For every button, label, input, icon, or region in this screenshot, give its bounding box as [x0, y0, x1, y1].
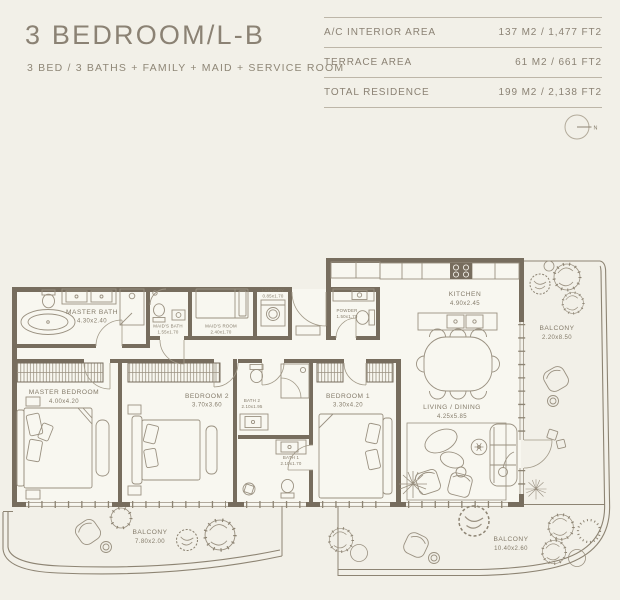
label-bath2-dims: 2.10x1.95 — [241, 404, 262, 409]
label-kitchen: KITCHEN — [449, 291, 481, 298]
label-balcony-right-dims: 2.20x8.50 — [542, 335, 572, 341]
label-maids-room-dims: 2.40x1.70 — [210, 330, 231, 335]
label-balcony-right: BALCONY — [539, 325, 574, 332]
floorplan-drawing: N MASTER BATH 4.30x2.40 MAID'S BATH 1.55… — [0, 0, 620, 600]
label-powder-dims: 1.50x1.70 — [336, 314, 357, 319]
label-bedroom2: BEDROOM 2 — [185, 393, 229, 400]
stove — [450, 263, 472, 279]
label-living-dining: LIVING / DINING — [423, 404, 481, 411]
label-bath1: BATH 1 — [283, 455, 300, 460]
label-powder: POWDER — [337, 308, 358, 313]
label-balcony-bottom-dims: 10.40x2.60 — [494, 546, 528, 552]
label-living-dining-dims: 4.25x5.85 — [437, 414, 467, 420]
label-balcony-left: BALCONY — [132, 529, 167, 536]
label-master-bedroom: MASTER BEDROOM — [29, 389, 99, 396]
balcony-bottom-decor — [329, 506, 600, 567]
label-bath1-dims: 2.10x1.70 — [280, 461, 301, 466]
floorplan-page: { "colors": { "background": "#f2f0e8", "… — [0, 0, 620, 600]
label-master-bath: MASTER BATH — [66, 309, 118, 316]
label-bedroom1-dims: 3.30x4.20 — [333, 403, 363, 409]
compass-north-label: N — [594, 126, 598, 132]
closets — [17, 363, 393, 382]
label-master-bedroom-dims: 4.00x4.20 — [49, 399, 79, 405]
label-bath2: BATH 2 — [244, 398, 261, 403]
label-bedroom2-dims: 3.70x3.60 — [192, 403, 222, 409]
label-balcony-left-dims: 7.80x2.00 — [135, 539, 165, 545]
label-master-bath-dims: 4.30x2.40 — [77, 319, 107, 325]
label-kitchen-dims: 4.90x2.45 — [450, 301, 480, 307]
label-maids-bath-dims: 1.55x1.70 — [157, 330, 178, 335]
label-bedroom1: BEDROOM 1 — [326, 393, 370, 400]
compass: N — [565, 115, 598, 139]
label-maids-bath: MAID'S BATH — [153, 324, 183, 329]
label-maids-room: MAID'S ROOM — [205, 324, 237, 329]
label-laundry: LAUNDRY — [262, 288, 284, 293]
balcony-right-decor — [526, 261, 584, 500]
label-laundry-dims: 0.85x1.70 — [262, 294, 283, 299]
label-balcony-bottom: BALCONY — [493, 536, 528, 543]
